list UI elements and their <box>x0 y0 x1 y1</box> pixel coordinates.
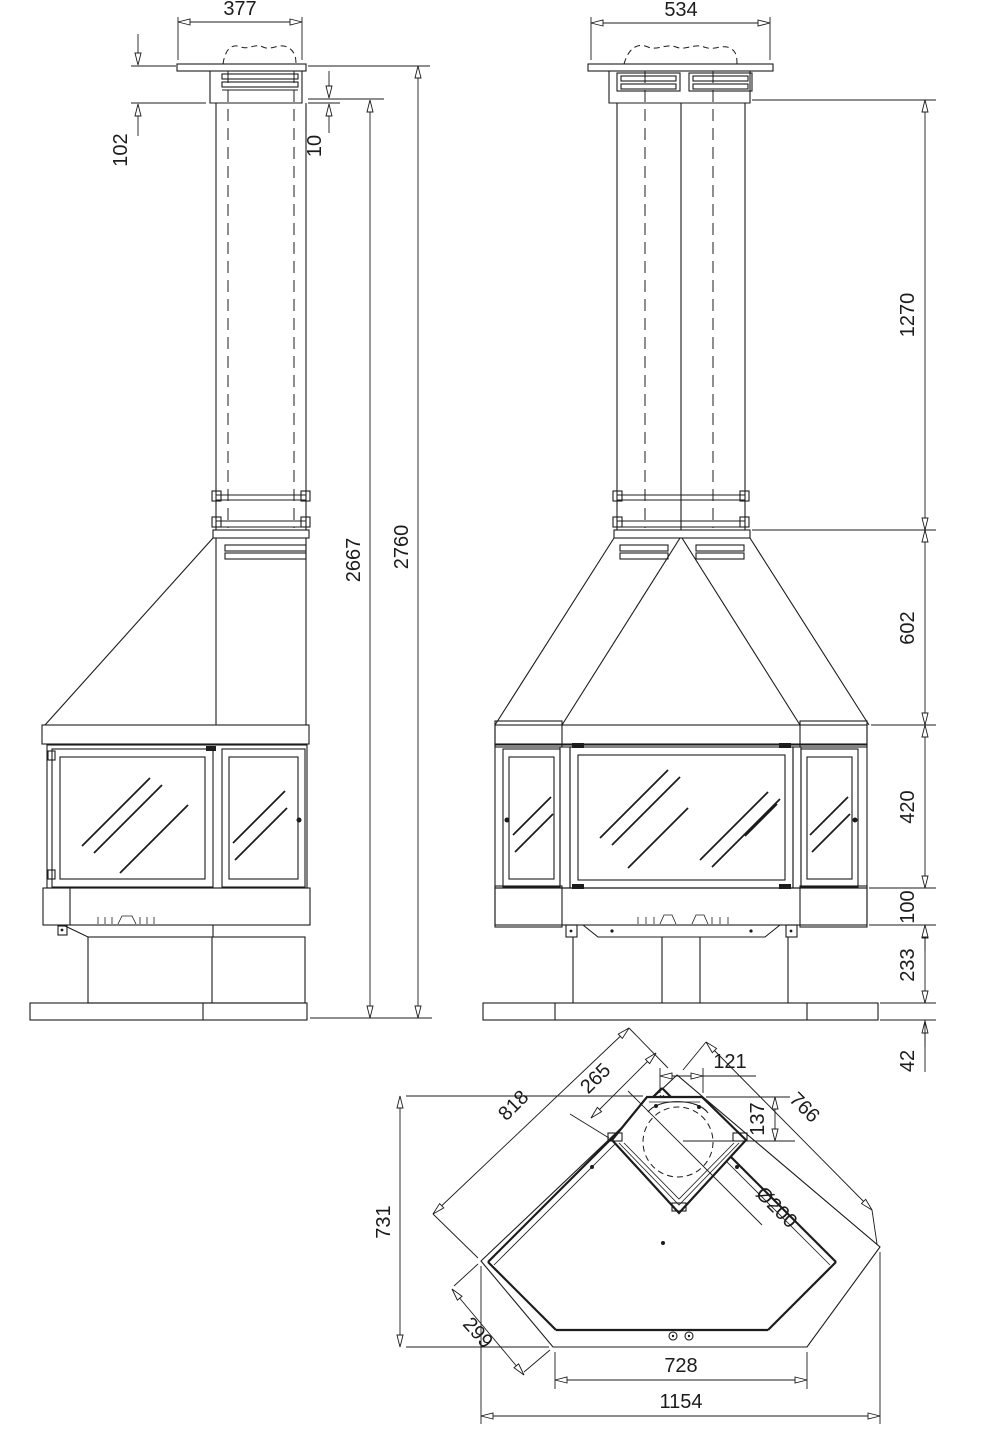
hood-vent-slots <box>620 545 744 559</box>
hood-top-plate <box>213 530 309 538</box>
dim-label: 10 <box>304 135 326 157</box>
dim-label: 42 <box>897 1050 919 1072</box>
right-glass-panel <box>801 749 858 887</box>
glass-hatching <box>82 778 287 873</box>
dim-plan-flue-opening: 121 <box>660 1051 756 1093</box>
pipe-break-wave <box>624 46 737 64</box>
pipe-break-wave <box>223 46 296 64</box>
technical-drawing-page: 377 102 10 2667 2760 534 <box>0 0 987 1433</box>
front-view <box>483 46 878 1020</box>
dim-front-chain: 1270 602 420 100 233 42 <box>752 100 936 1072</box>
base-band <box>495 888 867 925</box>
hood-slope <box>45 538 213 725</box>
dim-label: 100 <box>897 890 919 923</box>
dim-label: 1270 <box>897 293 919 338</box>
dim-label: 602 <box>897 611 919 644</box>
dim-label: 265 <box>576 1059 615 1098</box>
cap-top-plate <box>588 64 773 71</box>
side-view <box>30 46 310 1020</box>
floor-plate <box>30 1003 307 1020</box>
dim-label: 2667 <box>343 538 365 583</box>
dim-label: 1154 <box>659 1391 702 1413</box>
dim-label: 233 <box>897 948 919 981</box>
dim-label: 766 <box>785 1088 824 1127</box>
hood-top-plate <box>614 530 750 538</box>
dim-label: 534 <box>664 0 697 21</box>
flue-collar <box>608 1097 747 1213</box>
dim-label: 728 <box>664 1355 697 1377</box>
glass-door <box>52 749 213 887</box>
air-control-ticks <box>638 915 728 924</box>
door-knob <box>297 818 302 823</box>
dim-side-body-height: 2667 <box>343 100 370 1018</box>
dim-side-cap-width: 377 <box>178 0 302 60</box>
dim-label: 420 <box>897 790 919 823</box>
dim-label: 2760 <box>391 525 413 570</box>
dim-side-cap-height: 102 <box>110 34 206 167</box>
ash-lip <box>63 925 213 937</box>
pedestal <box>88 937 305 1003</box>
hood-vent-slot <box>225 545 306 551</box>
left-glass-panel <box>503 749 560 887</box>
pipe-collar-joint <box>212 491 310 527</box>
dim-side-cap-overlap: 10 <box>304 71 384 157</box>
center-glass-door <box>570 747 793 888</box>
air-control-ticks <box>98 916 154 924</box>
dim-label: 137 <box>747 1102 769 1135</box>
plan-view <box>481 1075 880 1347</box>
fireplace-dimension-drawing: 377 102 10 2667 2760 534 <box>0 0 987 1433</box>
dim-plan-front-width: 728 <box>555 1352 807 1389</box>
glass-hatching <box>513 770 850 868</box>
dim-label: 731 <box>373 1205 395 1238</box>
cap-vent-grilles <box>617 73 752 91</box>
mantel-shelf <box>42 725 309 744</box>
dim-label: 377 <box>223 0 256 20</box>
dim-label: Ø200 <box>751 1183 801 1233</box>
floor-plate <box>483 1003 878 1020</box>
dim-plan-chamfer: 299 <box>452 1264 550 1375</box>
door-knob <box>853 818 858 823</box>
pedestal <box>573 937 788 1003</box>
dim-label: 102 <box>110 133 132 166</box>
dim-label: 818 <box>494 1086 533 1125</box>
base-band <box>43 888 310 925</box>
door-knob <box>505 818 510 823</box>
cap-top-plate <box>177 64 306 71</box>
mantel-shelf <box>495 725 867 744</box>
side-glass-panel <box>222 749 305 887</box>
hood-slope <box>495 538 614 725</box>
dim-front-cap-width: 534 <box>591 0 770 60</box>
